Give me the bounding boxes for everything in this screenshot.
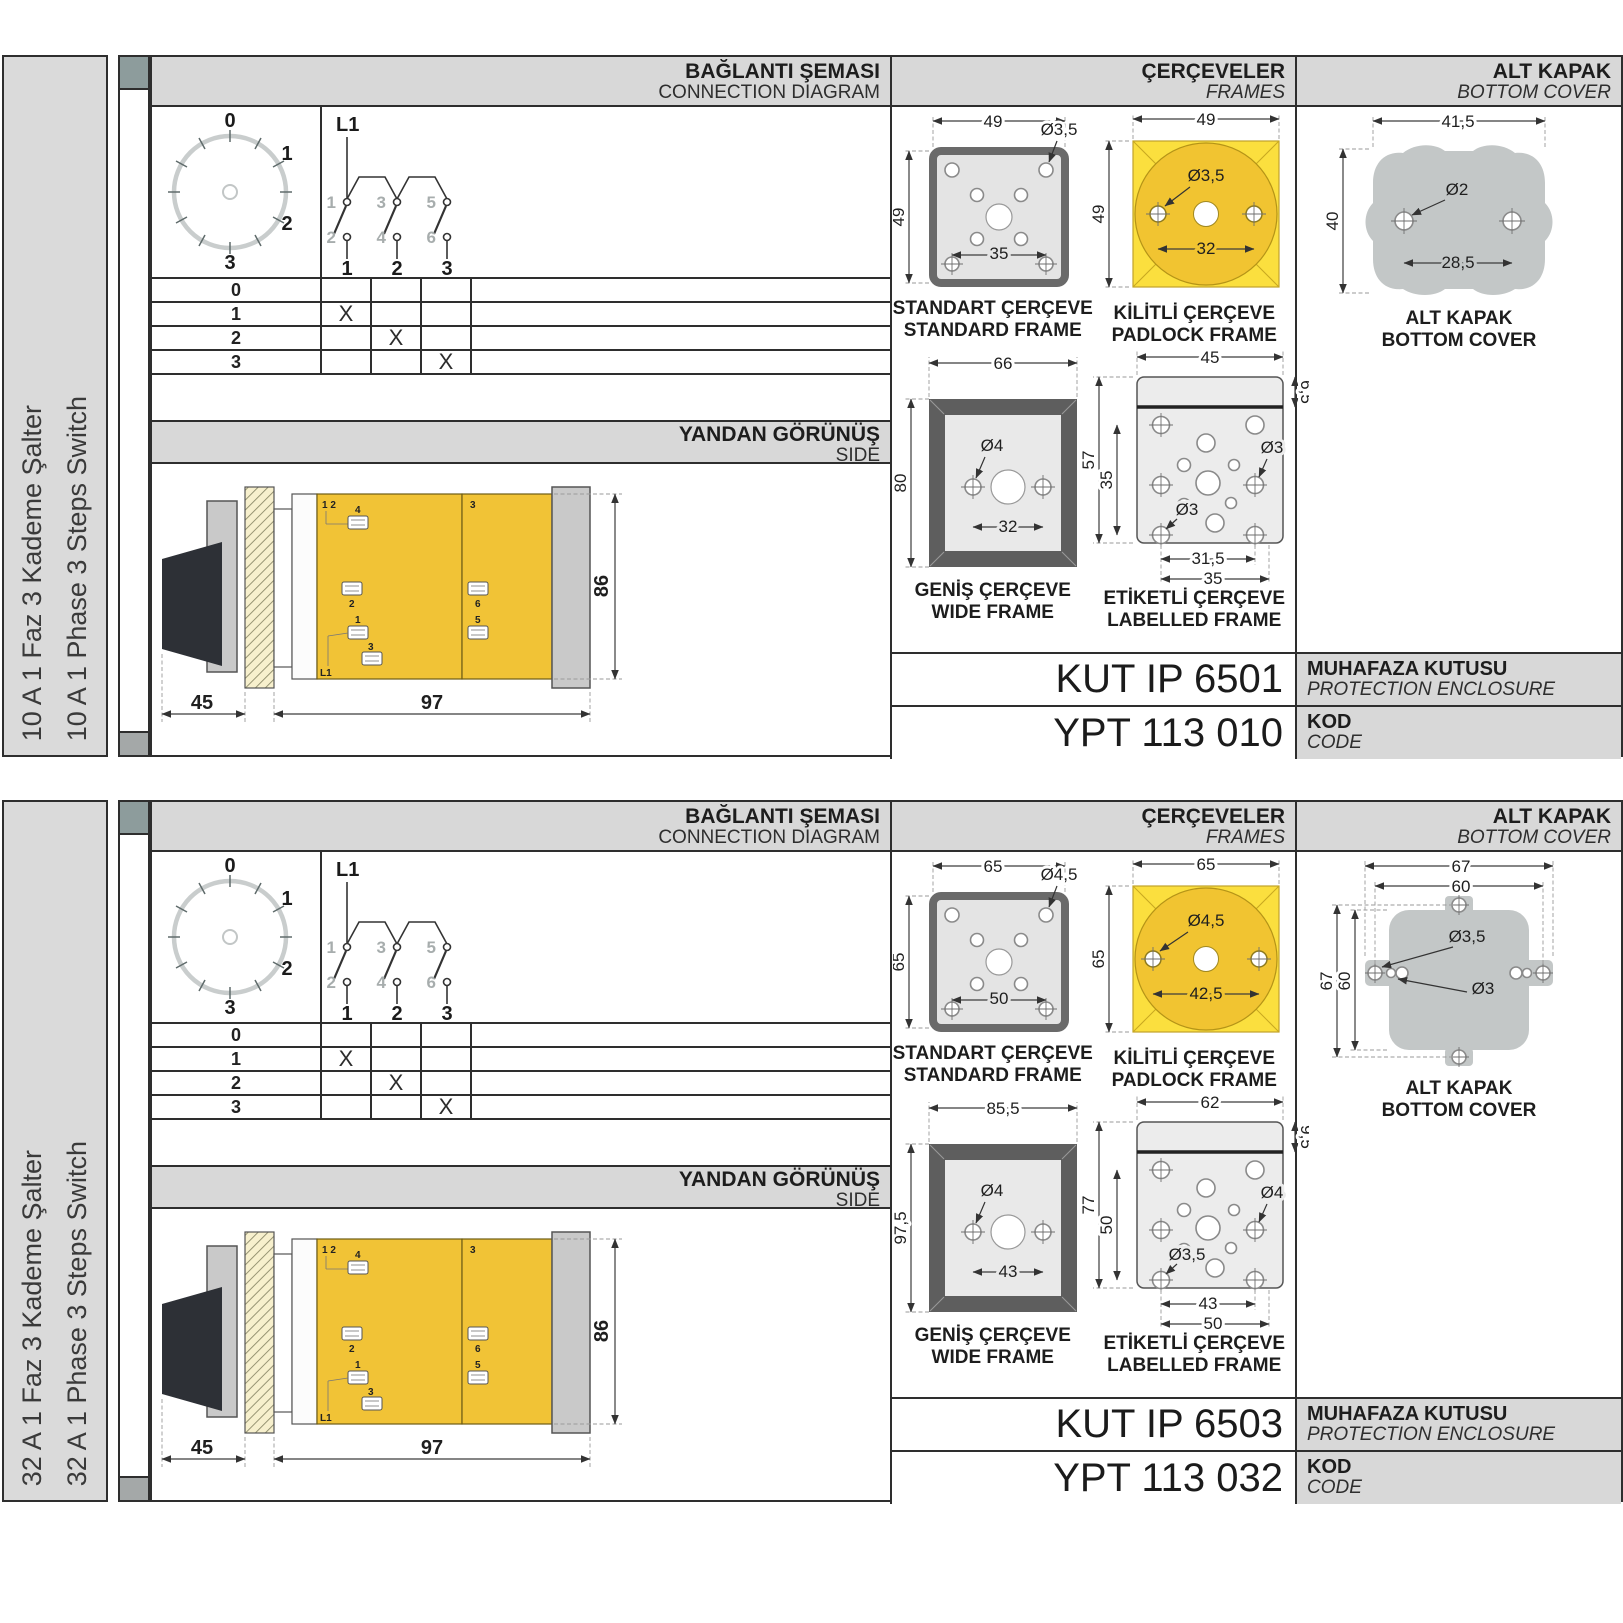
dim-inner: 32	[1197, 239, 1216, 258]
product-title-tr: 10 A 1 Faz 3 Kademe Şalter	[17, 405, 48, 741]
enclosure-label: MUHAFAZA KUTUSU PROTECTION ENCLOSURE	[1297, 654, 1621, 705]
dim-hole: Ø3,5	[1188, 166, 1225, 185]
mark-cell	[322, 1072, 372, 1094]
caption-en: BOTTOM COVER	[1382, 1100, 1537, 1122]
terminal-label: 4	[355, 505, 361, 516]
pole-number: 1	[341, 1003, 352, 1022]
header-cover-tr: ALT KAPAK	[1297, 805, 1611, 828]
terminal-label: 3	[470, 500, 476, 511]
dim-inner-height: 50	[1097, 1215, 1116, 1234]
mark-cell: X	[372, 1072, 422, 1094]
standard-frame-figure: 49 Ø3,5 35 49	[892, 107, 1094, 347]
empty-cell	[472, 303, 890, 325]
dim-inner: 32	[998, 517, 1017, 536]
mark-cell	[322, 1024, 372, 1046]
table-row: 3 X	[152, 1096, 890, 1120]
row-label: 3	[152, 1096, 322, 1118]
connection-diagram-area: 0 1 2 3 L1 1 2	[152, 852, 892, 1504]
phase-label: L1	[336, 859, 359, 881]
code-label-tr: KOD	[1307, 1456, 1621, 1478]
dim-97: 97	[421, 1437, 443, 1459]
bottom-cover-diagram: Ø2 41,5 40 28,5	[1309, 107, 1609, 307]
phase-label: L1	[336, 114, 359, 136]
content-panel: BAĞLANTI ŞEMASI CONNECTION DIAGRAM ÇERÇE…	[150, 800, 1623, 1502]
dim-45: 45	[191, 692, 213, 714]
contact-bottom: 6	[427, 228, 436, 247]
mark-cell	[422, 1072, 472, 1094]
product-code: YPT 113 032	[892, 1452, 1297, 1504]
code-label: KOD CODE	[1297, 1452, 1621, 1504]
product-section-10a: 10 A 1 Faz 3 Kademe Şalter 10 A 1 Phase …	[0, 55, 1623, 757]
caption-en: LABELLED FRAME	[1103, 610, 1285, 632]
mark-cell: X	[322, 1048, 372, 1070]
dim-hole: Ø4,5	[1188, 911, 1225, 930]
mark-cell	[422, 327, 472, 349]
mark-cell	[322, 279, 372, 301]
terminal-label: 1 2	[322, 500, 336, 511]
caption-en: BOTTOM COVER	[1382, 330, 1537, 352]
terminal-label: 2	[349, 599, 355, 610]
dim-86: 86	[591, 575, 613, 597]
row-label: 1	[152, 1048, 322, 1070]
table-row: 1 X	[152, 303, 890, 327]
terminal-label: 6	[475, 1344, 481, 1355]
dim-inner: 42,5	[1190, 984, 1223, 1003]
switch-knob	[162, 1287, 222, 1411]
circuit-cell: L1 1 2 1	[322, 107, 890, 279]
caption-tr: STANDART ÇERÇEVE	[893, 1043, 1093, 1065]
code-label-en: CODE	[1307, 1478, 1621, 1499]
side-view-area: 1 2 3 4 2 6 1 5 3	[152, 464, 890, 759]
figure-caption: ETİKETLİ ÇERÇEVE LABELLED FRAME	[1103, 1333, 1285, 1377]
figure-caption: KİLİTLİ ÇERÇEVE PADLOCK FRAME	[1112, 303, 1277, 347]
pole-number: 3	[441, 258, 452, 277]
bottom-cover-area: Ø3,5 Ø3 67 60 67 60	[1297, 852, 1621, 1397]
pole-number: 2	[391, 1003, 402, 1022]
caption-en: PADLOCK FRAME	[1112, 1070, 1277, 1092]
contact-top: 5	[427, 193, 436, 212]
mark-cell	[372, 351, 422, 373]
connection-diagram-area: 0 1 2 3 L1 1 2	[152, 107, 892, 759]
mark-cell	[322, 351, 372, 373]
spacer-column	[118, 55, 150, 757]
enclosure-code: KUT IP 6501	[892, 654, 1297, 705]
dim-inner: 35	[989, 244, 1008, 263]
header-frames-en: FRAMES	[892, 83, 1285, 104]
contact-bottom: 6	[427, 973, 436, 992]
side-view-title-tr: YANDAN GÖRÜNÜŞ	[152, 1168, 880, 1191]
dim-hole: Ø2	[1446, 180, 1469, 199]
empty-cell	[472, 1096, 890, 1118]
dim-height: 57	[1079, 450, 1098, 469]
figure-caption: ETİKETLİ ÇERÇEVE LABELLED FRAME	[1103, 588, 1285, 632]
pole-1: 1 2 1	[327, 938, 353, 1022]
mark-cell	[372, 303, 422, 325]
mark-cell: X	[372, 327, 422, 349]
caption-tr: STANDART ÇERÇEVE	[893, 298, 1093, 320]
dim-86: 86	[591, 1320, 613, 1342]
dial-pos-2: 2	[281, 213, 292, 235]
terminal-label: 5	[475, 1360, 481, 1371]
figure-caption: STANDART ÇERÇEVE STANDARD FRAME	[893, 1043, 1093, 1087]
header-frames-en: FRAMES	[892, 828, 1285, 849]
bottom-cover-figure: Ø2 41,5 40 28,5 ALT KAPAK BOTTOM COVER	[1297, 107, 1621, 352]
padlock-frame-diagram: 49 Ø3,5 32	[1089, 107, 1299, 302]
switching-table: 0 1 X 2 X	[152, 279, 890, 375]
dim-height: 80	[893, 473, 910, 492]
header-connection-en: CONNECTION DIAGRAM	[152, 828, 880, 849]
header-connection: BAĞLANTI ŞEMASI CONNECTION DIAGRAM	[152, 802, 892, 850]
standard-frame-figure: 65 Ø4,5 50 65	[892, 852, 1094, 1092]
dim-width-inner: 60	[1452, 877, 1471, 896]
mark-cell: X	[422, 1096, 472, 1118]
contact-top: 1	[327, 938, 336, 957]
enclosure-label: MUHAFAZA KUTUSU PROTECTION ENCLOSURE	[1297, 1399, 1621, 1450]
dim-height: 49	[893, 208, 908, 227]
labelled-frame-figure: 45 6,5 Ø3 Ø3	[1094, 347, 1296, 632]
product-section-32a: 32 A 1 Faz 3 Kademe Şalter 32 A 1 Phase …	[0, 800, 1623, 1502]
terminal-label: 3	[368, 642, 374, 653]
dim-inner: 28,5	[1441, 253, 1474, 272]
mounting-panel	[245, 1232, 274, 1433]
caption-en: LABELLED FRAME	[1103, 1355, 1285, 1377]
table-row: 0	[152, 1024, 890, 1048]
switch-knob	[162, 542, 222, 666]
dim-inner-width: 31,5	[1192, 549, 1225, 568]
wide-frame-diagram: 85,5 Ø4 43 97,5	[893, 1092, 1093, 1324]
dim-height: 67	[1317, 972, 1336, 991]
mark-cell	[372, 279, 422, 301]
dim-height: 49	[1089, 205, 1108, 224]
switching-table: 0 1 X 2 X	[152, 1024, 890, 1120]
row-label: 1	[152, 303, 322, 325]
dimension-depth: 97	[274, 692, 590, 722]
dim-inner: 43	[998, 1262, 1017, 1281]
contact-bottom: 4	[377, 228, 387, 247]
wide-frame-figure: 66 Ø4 32 80	[892, 347, 1094, 632]
spacer-top-square	[120, 802, 148, 835]
header-band: BAĞLANTI ŞEMASI CONNECTION DIAGRAM ÇERÇE…	[152, 802, 1621, 852]
side-view-title-tr: YANDAN GÖRÜNÜŞ	[152, 423, 880, 446]
figure-caption: ALT KAPAK BOTTOM COVER	[1382, 1078, 1537, 1122]
labelled-frame-diagram: 45 6,5 Ø3 Ø3	[1079, 347, 1309, 587]
pole-1: 1 2 1	[327, 193, 353, 277]
dim-height-inner: 60	[1335, 972, 1354, 991]
frames-area: 49 Ø3,5 35 49	[892, 107, 1297, 652]
header-connection-en: CONNECTION DIAGRAM	[152, 83, 880, 104]
caption-tr: GENİŞ ÇERÇEVE	[915, 1325, 1071, 1347]
caption-tr: KİLİTLİ ÇERÇEVE	[1112, 303, 1277, 325]
contact-top: 3	[377, 938, 386, 957]
header-frames: ÇERÇEVELER FRAMES	[892, 802, 1297, 850]
dim-width: 62	[1201, 1093, 1220, 1112]
dial-pos-3: 3	[224, 997, 235, 1019]
dial-cell: 0 1 2 3	[152, 107, 322, 279]
table-row: 1 X	[152, 1048, 890, 1072]
enclosure-code: KUT IP 6503	[892, 1399, 1297, 1450]
dim-outer-width: 50	[1204, 1314, 1223, 1332]
figure-caption: ALT KAPAK BOTTOM COVER	[1382, 308, 1537, 352]
contact-top: 5	[427, 938, 436, 957]
dial-pos-1: 1	[281, 143, 292, 165]
terminal-label: 5	[475, 615, 481, 626]
contact-bottom: 2	[327, 973, 336, 992]
mark-cell	[372, 1096, 422, 1118]
wide-frame-figure: 85,5 Ø4 43 97,5	[892, 1092, 1094, 1377]
caption-en: STANDARD FRAME	[893, 1065, 1093, 1087]
product-title-tr: 32 A 1 Faz 3 Kademe Şalter	[17, 1150, 48, 1486]
labelled-frame-figure: 62 9,5 Ø4 Ø3,5	[1094, 1092, 1296, 1377]
bottom-cover-figure: Ø3,5 Ø3 67 60 67 60	[1297, 852, 1621, 1122]
enclosure-label-tr: MUHAFAZA KUTUSU	[1307, 658, 1621, 680]
dim-hole-right: Ø4	[1261, 1183, 1284, 1202]
row-label: 0	[152, 1024, 322, 1046]
pole-3: 5 6 3	[427, 938, 453, 1022]
dim-inner-width: 43	[1199, 1294, 1218, 1313]
dim-hole-1: Ø3,5	[1449, 927, 1486, 946]
mark-cell	[422, 1048, 472, 1070]
dim-width: 66	[993, 354, 1012, 373]
table-row: 0	[152, 279, 890, 303]
dim-width: 67	[1452, 857, 1471, 876]
mark-cell: X	[322, 303, 372, 325]
terminal-label: 4	[355, 1250, 361, 1261]
dim-45: 45	[191, 1437, 213, 1459]
dial-pos-2: 2	[281, 958, 292, 980]
pole-number: 2	[391, 258, 402, 277]
contact-top: 1	[327, 193, 336, 212]
caption-tr: GENİŞ ÇERÇEVE	[915, 580, 1071, 602]
empty-cell	[472, 1072, 890, 1094]
padlock-frame-diagram: 65 Ø4,5 42,5	[1089, 852, 1299, 1047]
content-panel: BAĞLANTI ŞEMASI CONNECTION DIAGRAM ÇERÇE…	[150, 55, 1623, 757]
end-cap	[552, 1232, 590, 1433]
empty-cell	[472, 327, 890, 349]
terminal-label: 1 2	[322, 1245, 336, 1256]
sidebar: 32 A 1 Faz 3 Kademe Şalter 32 A 1 Phase …	[2, 800, 108, 1502]
contact-bottom: 4	[377, 973, 387, 992]
terminal-label: L1	[320, 668, 332, 679]
figure-caption: STANDART ÇERÇEVE STANDARD FRAME	[893, 298, 1093, 342]
code-label-en: CODE	[1307, 733, 1621, 754]
header-cover-en: BOTTOM COVER	[1297, 83, 1611, 104]
side-view-area: 1 2 3 4 2 6 1 5 3	[152, 1209, 890, 1504]
mark-cell	[422, 279, 472, 301]
header-cover-tr: ALT KAPAK	[1297, 60, 1611, 83]
bottom-cover-diagram: Ø3,5 Ø3 67 60 67 60	[1309, 852, 1609, 1077]
terminal-label: 3	[470, 1245, 476, 1256]
enclosure-label-tr: MUHAFAZA KUTUSU	[1307, 1403, 1621, 1425]
mark-cell	[372, 1048, 422, 1070]
dim-height: 65	[893, 953, 908, 972]
switch-dial-diagram: 0 1 2 3	[152, 107, 318, 275]
spacer-top-square	[120, 57, 148, 90]
terminal-label: 3	[368, 1387, 374, 1398]
dim-hole-2: Ø3	[1472, 979, 1495, 998]
figure-caption: GENİŞ ÇERÇEVE WIDE FRAME	[915, 1325, 1071, 1369]
pole-number: 1	[341, 258, 352, 277]
caption-tr: KİLİTLİ ÇERÇEVE	[1112, 1048, 1277, 1070]
empty-cell	[472, 1048, 890, 1070]
dim-height: 77	[1079, 1195, 1098, 1214]
circuit-cell: L1 1 2 1	[322, 852, 890, 1024]
dim-width: 85,5	[986, 1099, 1019, 1118]
code-row: YPT 113 032 KOD CODE	[892, 1450, 1621, 1504]
spacer-bottom-square	[120, 731, 148, 755]
dim-width: 65	[983, 857, 1002, 876]
terminal-label: 2	[349, 1344, 355, 1355]
header-cover: ALT KAPAK BOTTOM COVER	[1297, 57, 1621, 105]
dim-inner-height: 35	[1097, 470, 1116, 489]
mark-cell	[422, 1024, 472, 1046]
header-cover: ALT KAPAK BOTTOM COVER	[1297, 802, 1621, 850]
dim-hole: Ø3,5	[1040, 120, 1077, 139]
dial-pos-0: 0	[224, 855, 235, 877]
end-cap	[552, 487, 590, 688]
enclosure-row: KUT IP 6503 MUHAFAZA KUTUSU PROTECTION E…	[892, 1397, 1621, 1450]
header-frames-tr: ÇERÇEVELER	[892, 805, 1285, 828]
dimension-depth: 97	[274, 1437, 590, 1467]
caption-en: WIDE FRAME	[915, 602, 1071, 624]
empty-cell	[472, 1024, 890, 1046]
side-view-band: YANDAN GÖRÜNÜŞ SIDE	[152, 420, 890, 464]
contact-circuit-diagram: L1 1 2 1	[322, 852, 890, 1022]
dim-width: 49	[983, 112, 1002, 131]
code-label: KOD CODE	[1297, 707, 1621, 759]
contact-circuit-diagram: L1 1 2 1	[322, 107, 890, 277]
dim-hole-bottom: Ø3,5	[1169, 1245, 1206, 1264]
empty-cell	[472, 351, 890, 373]
dim-hole-right: Ø3	[1261, 438, 1284, 457]
sidebar: 10 A 1 Faz 3 Kademe Şalter 10 A 1 Phase …	[2, 55, 108, 757]
switch-body-front	[317, 1239, 462, 1424]
header-connection: BAĞLANTI ŞEMASI CONNECTION DIAGRAM	[152, 57, 892, 105]
dim-height: 97,5	[893, 1211, 910, 1244]
header-frames-tr: ÇERÇEVELER	[892, 60, 1285, 83]
side-view-band: YANDAN GÖRÜNÜŞ SIDE	[152, 1165, 890, 1209]
pole-2: 3 4 2	[377, 938, 403, 1022]
caption-en: WIDE FRAME	[915, 1347, 1071, 1369]
dim-hole: Ø4	[980, 436, 1003, 455]
pole-2: 3 4 2	[377, 193, 403, 277]
terminal-label: 1	[355, 615, 361, 626]
caption-tr: ALT KAPAK	[1382, 1078, 1537, 1100]
wide-frame-diagram: 66 Ø4 32 80	[893, 347, 1093, 579]
cover-shape	[1366, 145, 1553, 295]
terminal-label: 6	[475, 599, 481, 610]
dim-height: 65	[1089, 950, 1108, 969]
dim-width: 65	[1197, 855, 1216, 874]
caption-tr: ETİKETLİ ÇERÇEVE	[1103, 1333, 1285, 1355]
product-title-en: 32 A 1 Phase 3 Steps Switch	[62, 1141, 93, 1486]
pole-3: 5 6 3	[427, 193, 453, 277]
dial-pos-1: 1	[281, 888, 292, 910]
empty-cell	[472, 279, 890, 301]
mark-cell	[422, 303, 472, 325]
code-row: YPT 113 010 KOD CODE	[892, 705, 1621, 759]
dim-outer-width: 35	[1204, 569, 1223, 587]
caption-en: STANDARD FRAME	[893, 320, 1093, 342]
dim-hole: Ø4,5	[1040, 865, 1077, 884]
terminal-label: L1	[320, 1413, 332, 1424]
enclosure-label-en: PROTECTION ENCLOSURE	[1307, 680, 1621, 701]
dim-inner: 50	[989, 989, 1008, 1008]
header-frames: ÇERÇEVELER FRAMES	[892, 57, 1297, 105]
spacer-column	[118, 800, 150, 1502]
enclosure-label-en: PROTECTION ENCLOSURE	[1307, 1425, 1621, 1446]
table-row: 2 X	[152, 1072, 890, 1096]
row-label: 2	[152, 327, 322, 349]
dial-pos-0: 0	[224, 110, 235, 132]
bottom-cover-area: Ø2 41,5 40 28,5 ALT KAPAK BOTTOM COVER	[1297, 107, 1621, 652]
dim-97: 97	[421, 692, 443, 714]
figure-caption: KİLİTLİ ÇERÇEVE PADLOCK FRAME	[1112, 1048, 1277, 1092]
padlock-frame-figure: 65 Ø4,5 42,5	[1094, 852, 1296, 1092]
dim-hole: Ø4	[980, 1181, 1003, 1200]
frames-area: 65 Ø4,5 50 65	[892, 852, 1297, 1397]
row-label: 3	[152, 351, 322, 373]
dim-width: 45	[1201, 348, 1220, 367]
dim-width: 49	[1197, 110, 1216, 129]
header-connection-tr: BAĞLANTI ŞEMASI	[152, 60, 880, 83]
contact-bottom: 2	[327, 228, 336, 247]
row-label: 2	[152, 1072, 322, 1094]
row-label: 0	[152, 279, 322, 301]
terminal-label: 1	[355, 1360, 361, 1371]
product-title-en: 10 A 1 Phase 3 Steps Switch	[62, 396, 93, 741]
mounting-panel	[245, 487, 274, 688]
dim-hole-bottom: Ø3	[1176, 500, 1199, 519]
side-view-drawing: 1 2 3 4 2 6 1 5 3	[152, 464, 888, 759]
switch-dial-diagram: 0 1 2 3	[152, 852, 318, 1020]
header-connection-tr: BAĞLANTI ŞEMASI	[152, 805, 880, 828]
caption-tr: ETİKETLİ ÇERÇEVE	[1103, 588, 1285, 610]
spacer-bottom-square	[120, 1476, 148, 1500]
mark-cell	[372, 1024, 422, 1046]
contact-top: 3	[377, 193, 386, 212]
caption-tr: ALT KAPAK	[1382, 308, 1537, 330]
mark-cell	[322, 327, 372, 349]
table-row: 3 X	[152, 351, 890, 375]
dial-pos-3: 3	[224, 252, 235, 274]
padlock-frame-figure: 49 Ø3,5 32	[1094, 107, 1296, 347]
side-view-drawing: 1 2 3 4 2 6 1 5 3	[152, 1209, 888, 1504]
product-code: YPT 113 010	[892, 707, 1297, 759]
dim-width: 41,5	[1441, 112, 1474, 131]
dial-cell: 0 1 2 3	[152, 852, 322, 1024]
table-row: 2 X	[152, 327, 890, 351]
standard-frame-diagram: 49 Ø3,5 35 49	[893, 107, 1093, 297]
dim-height: 40	[1323, 212, 1342, 231]
enclosure-row: KUT IP 6501 MUHAFAZA KUTUSU PROTECTION E…	[892, 652, 1621, 705]
header-band: BAĞLANTI ŞEMASI CONNECTION DIAGRAM ÇERÇE…	[152, 57, 1621, 107]
caption-en: PADLOCK FRAME	[1112, 325, 1277, 347]
code-label-tr: KOD	[1307, 711, 1621, 733]
pole-number: 3	[441, 1003, 452, 1022]
mark-cell: X	[422, 351, 472, 373]
header-cover-en: BOTTOM COVER	[1297, 828, 1611, 849]
labelled-frame-diagram: 62 9,5 Ø4 Ø3,5	[1079, 1092, 1309, 1332]
mark-cell	[322, 1096, 372, 1118]
standard-frame-diagram: 65 Ø4,5 50 65	[893, 852, 1093, 1042]
figure-caption: GENİŞ ÇERÇEVE WIDE FRAME	[915, 580, 1071, 624]
switch-body-front	[317, 494, 462, 679]
